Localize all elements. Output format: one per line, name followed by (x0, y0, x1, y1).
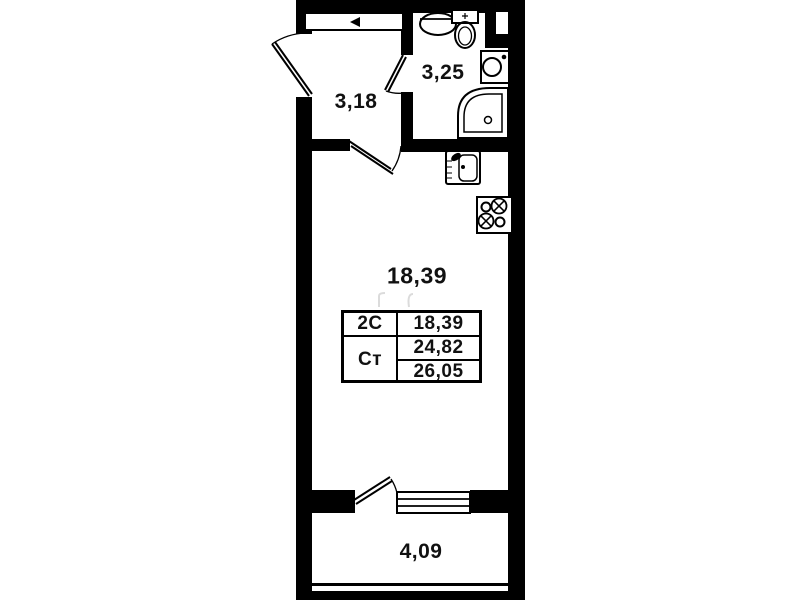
balcony-door-icon (354, 477, 397, 504)
vent-shaft-icon (485, 0, 512, 48)
wardrobe-icon (305, 13, 403, 30)
entrance-door-icon (272, 33, 312, 96)
table-cell-living-area: 24,82 (396, 335, 479, 359)
table-cell-studio: Ст (344, 335, 396, 383)
scan-artifact (379, 293, 413, 307)
washing-machine-icon (481, 51, 509, 83)
room-label-living-room: 18,39 (387, 263, 447, 290)
balcony-window-icon (397, 492, 470, 513)
living-room-door-icon (349, 141, 401, 174)
room-label-hallway: 3,18 (335, 90, 378, 114)
stove-burners-icon (477, 197, 512, 233)
balcony-wall-groove (312, 586, 508, 591)
floor-plan: 3,18 3,25 18,39 4,09 2С 18,39 Ст 24,82 2… (0, 0, 799, 600)
washbasin-icon (420, 13, 456, 35)
room-label-balcony: 4,09 (400, 540, 443, 564)
floor-plan-drawing (0, 0, 799, 600)
table-cell-type: 2С (344, 313, 396, 335)
shower-tray-icon (458, 88, 508, 138)
table-cell-total-area: 26,05 (396, 359, 479, 383)
bathroom-door-icon (385, 55, 406, 93)
toilet-icon (452, 10, 478, 48)
room-label-bathroom: 3,25 (422, 61, 465, 85)
kitchen-sink-icon (446, 151, 480, 184)
area-legend-table: 2С 18,39 Ст 24,82 26,05 (341, 310, 482, 383)
table-cell-type-area: 18,39 (396, 313, 479, 335)
